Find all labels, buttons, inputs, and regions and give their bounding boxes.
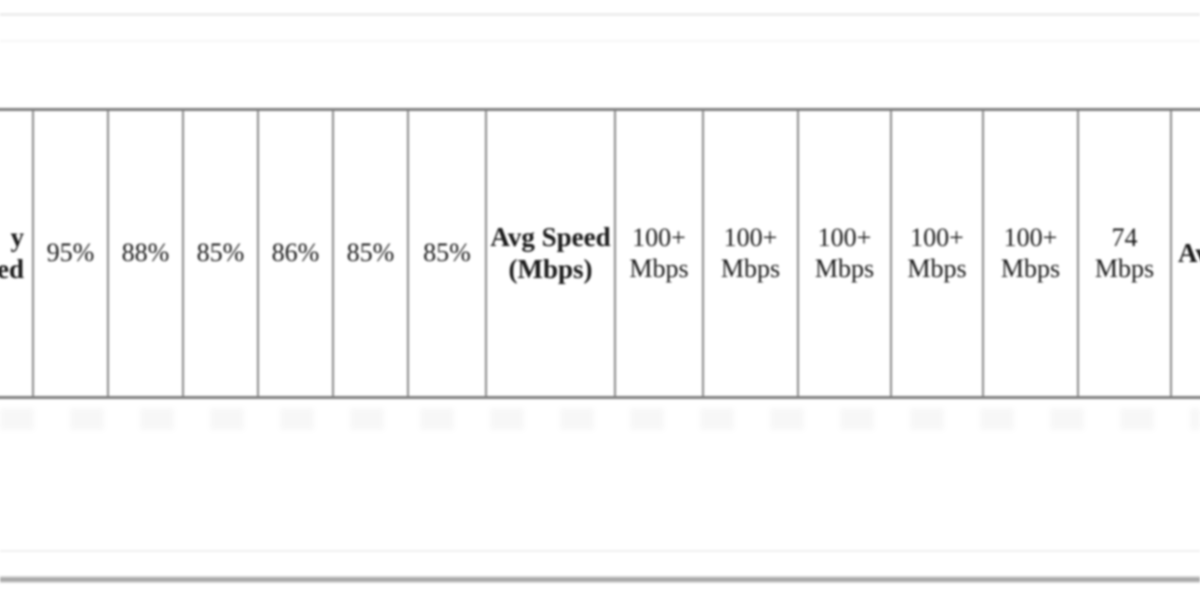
table-cell-speed-6: 74 Mbps [1079,111,1172,396]
table-cell-speed-1: 100+ Mbps [616,111,704,396]
table-cell-speed-3: 100+ Mbps [799,111,892,396]
table-cell-percent-6: 85% [409,111,487,396]
faint-top-rule-2 [0,40,1200,42]
table-cell-speed-4: 100+ Mbps [892,111,984,396]
table-header-avg-speed: Avg Speed (Mbps) [487,111,616,396]
table-cell-percent-3: 85% [184,111,259,396]
table-cell-percent-2: 88% [109,111,184,396]
table-cell-speed-5: 100+ Mbps [984,111,1079,396]
table-cell-percent-1: 95% [34,111,109,396]
table-row: y ed 95% 88% 85% 86% 85% 85% Avg Speed (… [0,108,1200,399]
table-cell-speed-2: 100+ Mbps [704,111,799,396]
table-cell-percent-4: 86% [259,111,334,396]
left-partial-line1: y [0,222,24,254]
table-cell-right-partial: Av [1172,111,1200,396]
faint-next-row-smudge [0,408,1200,430]
faint-bottom-rule [0,550,1200,552]
table-cell-percent-5: 85% [334,111,409,396]
bottom-divider-rule [0,576,1200,583]
left-partial-line2: ed [0,254,24,286]
faint-top-rule-1 [0,13,1200,16]
table-cell-left-partial: y ed [0,111,34,396]
page: y ed 95% 88% 85% 86% 85% 85% Avg Speed (… [0,0,1200,600]
